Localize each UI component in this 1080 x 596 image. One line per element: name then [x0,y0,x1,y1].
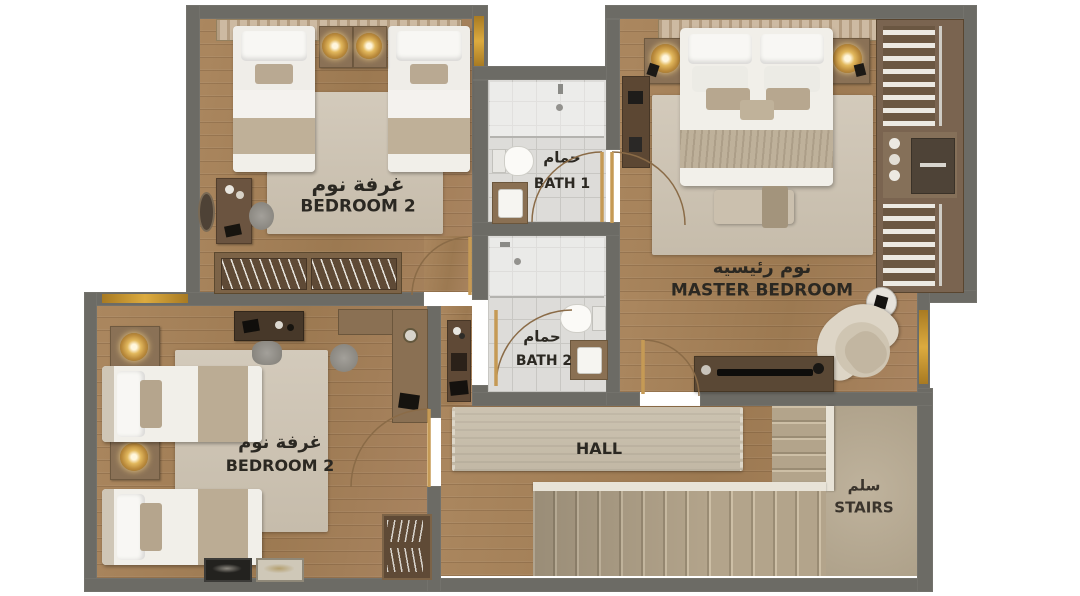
room-label-ar: نوم رئيسيه [713,259,812,277]
room-label-en: MASTER BEDROOM [671,283,853,300]
rolled-towel [889,170,900,181]
dresser-decor [287,324,294,331]
room-label-en: BATH 1 [534,177,590,191]
wall-top-left [186,5,488,19]
window-master-right [919,310,928,384]
rolled-towel [889,138,900,149]
hanging-clothes [387,520,423,542]
desk-decor [236,191,244,199]
bath1-vanity [492,182,528,224]
room-label-ar: غرفة نوم [312,174,405,194]
room-label-en: STAIRS [834,501,893,516]
wall-right-lower [917,388,933,592]
floor-plan: غرفة نوم BEDROOM 2 حمام BATH 1 حمام BATH… [0,0,1080,596]
wall-bath-left-upper [472,80,488,300]
console-decor-dark [813,363,824,374]
headboard [102,489,114,565]
stool [252,341,282,365]
stairs-rail-horizontal [533,482,826,491]
hanging-clothes [311,258,397,290]
single-bed-2 [388,26,470,172]
wall-master-left-upper [606,19,620,150]
wardrobe-niche [382,514,432,580]
closet-shelf-unit [883,132,957,198]
corridor-floor [424,236,472,292]
bed-foot [233,154,315,172]
wardrobe-bedroom2-top [214,252,402,294]
dresser-decor [275,321,283,329]
closet-rail [939,204,942,286]
room-label-en: BEDROOM 2 [226,458,335,474]
room-label-ar: حمام [523,330,561,345]
sink-basin [577,347,602,374]
bath1-toilet [492,144,534,176]
desk-chair [249,202,274,230]
console-books [451,353,467,371]
stairs-rail-vertical [826,406,834,491]
accent-pillow [140,380,162,428]
bath2-shower [490,238,604,298]
blanket [233,118,315,154]
accent-pillow-small [740,100,774,120]
pillow [241,31,307,61]
pillow [760,34,824,64]
hanging-clothes [387,548,423,572]
room-label-en: BEDROOM 2 [300,199,415,216]
bed-foot [680,168,833,186]
wall-left-lower [84,292,97,592]
console-flower [459,333,465,339]
drawer-box [911,138,955,194]
floor-mat-light [256,558,304,582]
room-label-ar: حمام [543,151,581,166]
wall-bedroom2b-right-upper [427,306,441,418]
accent-pillow [140,503,162,551]
console-hall [447,320,471,402]
hanging-clothes [883,26,935,126]
tv-screen [717,369,813,376]
wall-master-bottom-right [700,392,933,406]
window-bedroom2-bottom [102,294,188,303]
wall-master-left-lower [606,225,620,406]
shower-drain [556,104,563,111]
drawer-slot [920,163,946,167]
pillow [396,31,462,61]
desk-decor-dark [398,393,420,411]
window-notch [474,16,484,66]
table-lamp [120,333,148,361]
console-decor-dark [628,91,643,104]
shower-head [500,242,510,247]
blanket [198,489,248,565]
sink-basin [498,189,523,218]
wall-bath2-bottom [472,392,620,406]
wall-top-right [605,5,977,19]
bed-foot [248,366,262,442]
accent-pillow [410,64,448,84]
console-decor-dark [629,137,642,152]
pillow [688,34,752,64]
table-lamp [356,33,382,59]
single-bed-4 [102,489,262,565]
toilet-bowl [504,146,534,176]
room-label-en: HALL [576,441,622,457]
shower-head [558,84,563,94]
toilet-bowl [560,304,592,333]
desk-decor-dark [224,223,242,237]
table-lamp [322,33,348,59]
toilet-tank [592,306,606,331]
sheet-fold [388,90,470,119]
accent-pillow [255,64,293,84]
headboard [102,366,114,442]
console-decor [701,365,711,375]
double-bed-master [680,28,833,186]
bath2-toilet [558,302,604,334]
room-label-ar: سلم [848,479,881,494]
desk-decor [225,185,234,194]
dresser [234,311,304,341]
stairs-main-flight [533,491,826,576]
sheet-fold [233,90,315,119]
bench-throw [762,186,788,228]
room-label-en: BATH 2 [516,354,572,368]
table-lamp [120,443,148,471]
mat-pattern [212,564,242,573]
rolled-towel [889,154,900,165]
desk-plant [405,330,416,341]
dresser-decor-dark [242,319,260,334]
bath1-shower [490,82,604,138]
wall-bath1-top [472,66,620,80]
shower-drain [514,258,521,265]
room-label-ar: غرفة نوم [238,434,322,452]
hanging-clothes [883,204,935,286]
blanket [388,118,470,154]
desk-bedroom2-top [216,178,252,244]
wall-master-bottom-left [606,392,640,406]
blanket [198,366,248,442]
blanket [680,130,833,168]
wall-left-upper [186,5,200,306]
desk-chair [330,344,358,372]
bath2-vanity [570,340,608,380]
desk-top [338,309,394,335]
wall-right-upper [963,5,977,303]
stairs-upper-flight [772,406,826,482]
closet-rail [939,26,942,126]
single-bed-3 [102,366,262,442]
console-decor-dark [449,380,468,396]
tv-console [694,356,834,392]
bed-foot [388,154,470,172]
floor-mat-dark [204,558,252,582]
bed-foot [248,489,262,565]
mat-pattern [264,564,294,573]
mirror [198,192,215,232]
hanging-clothes [221,258,307,290]
console-master-left [622,76,650,168]
single-bed-1 [233,26,315,172]
wall-bath-mid [472,222,620,236]
wardrobe-master [876,19,964,293]
desk-side [392,309,428,423]
